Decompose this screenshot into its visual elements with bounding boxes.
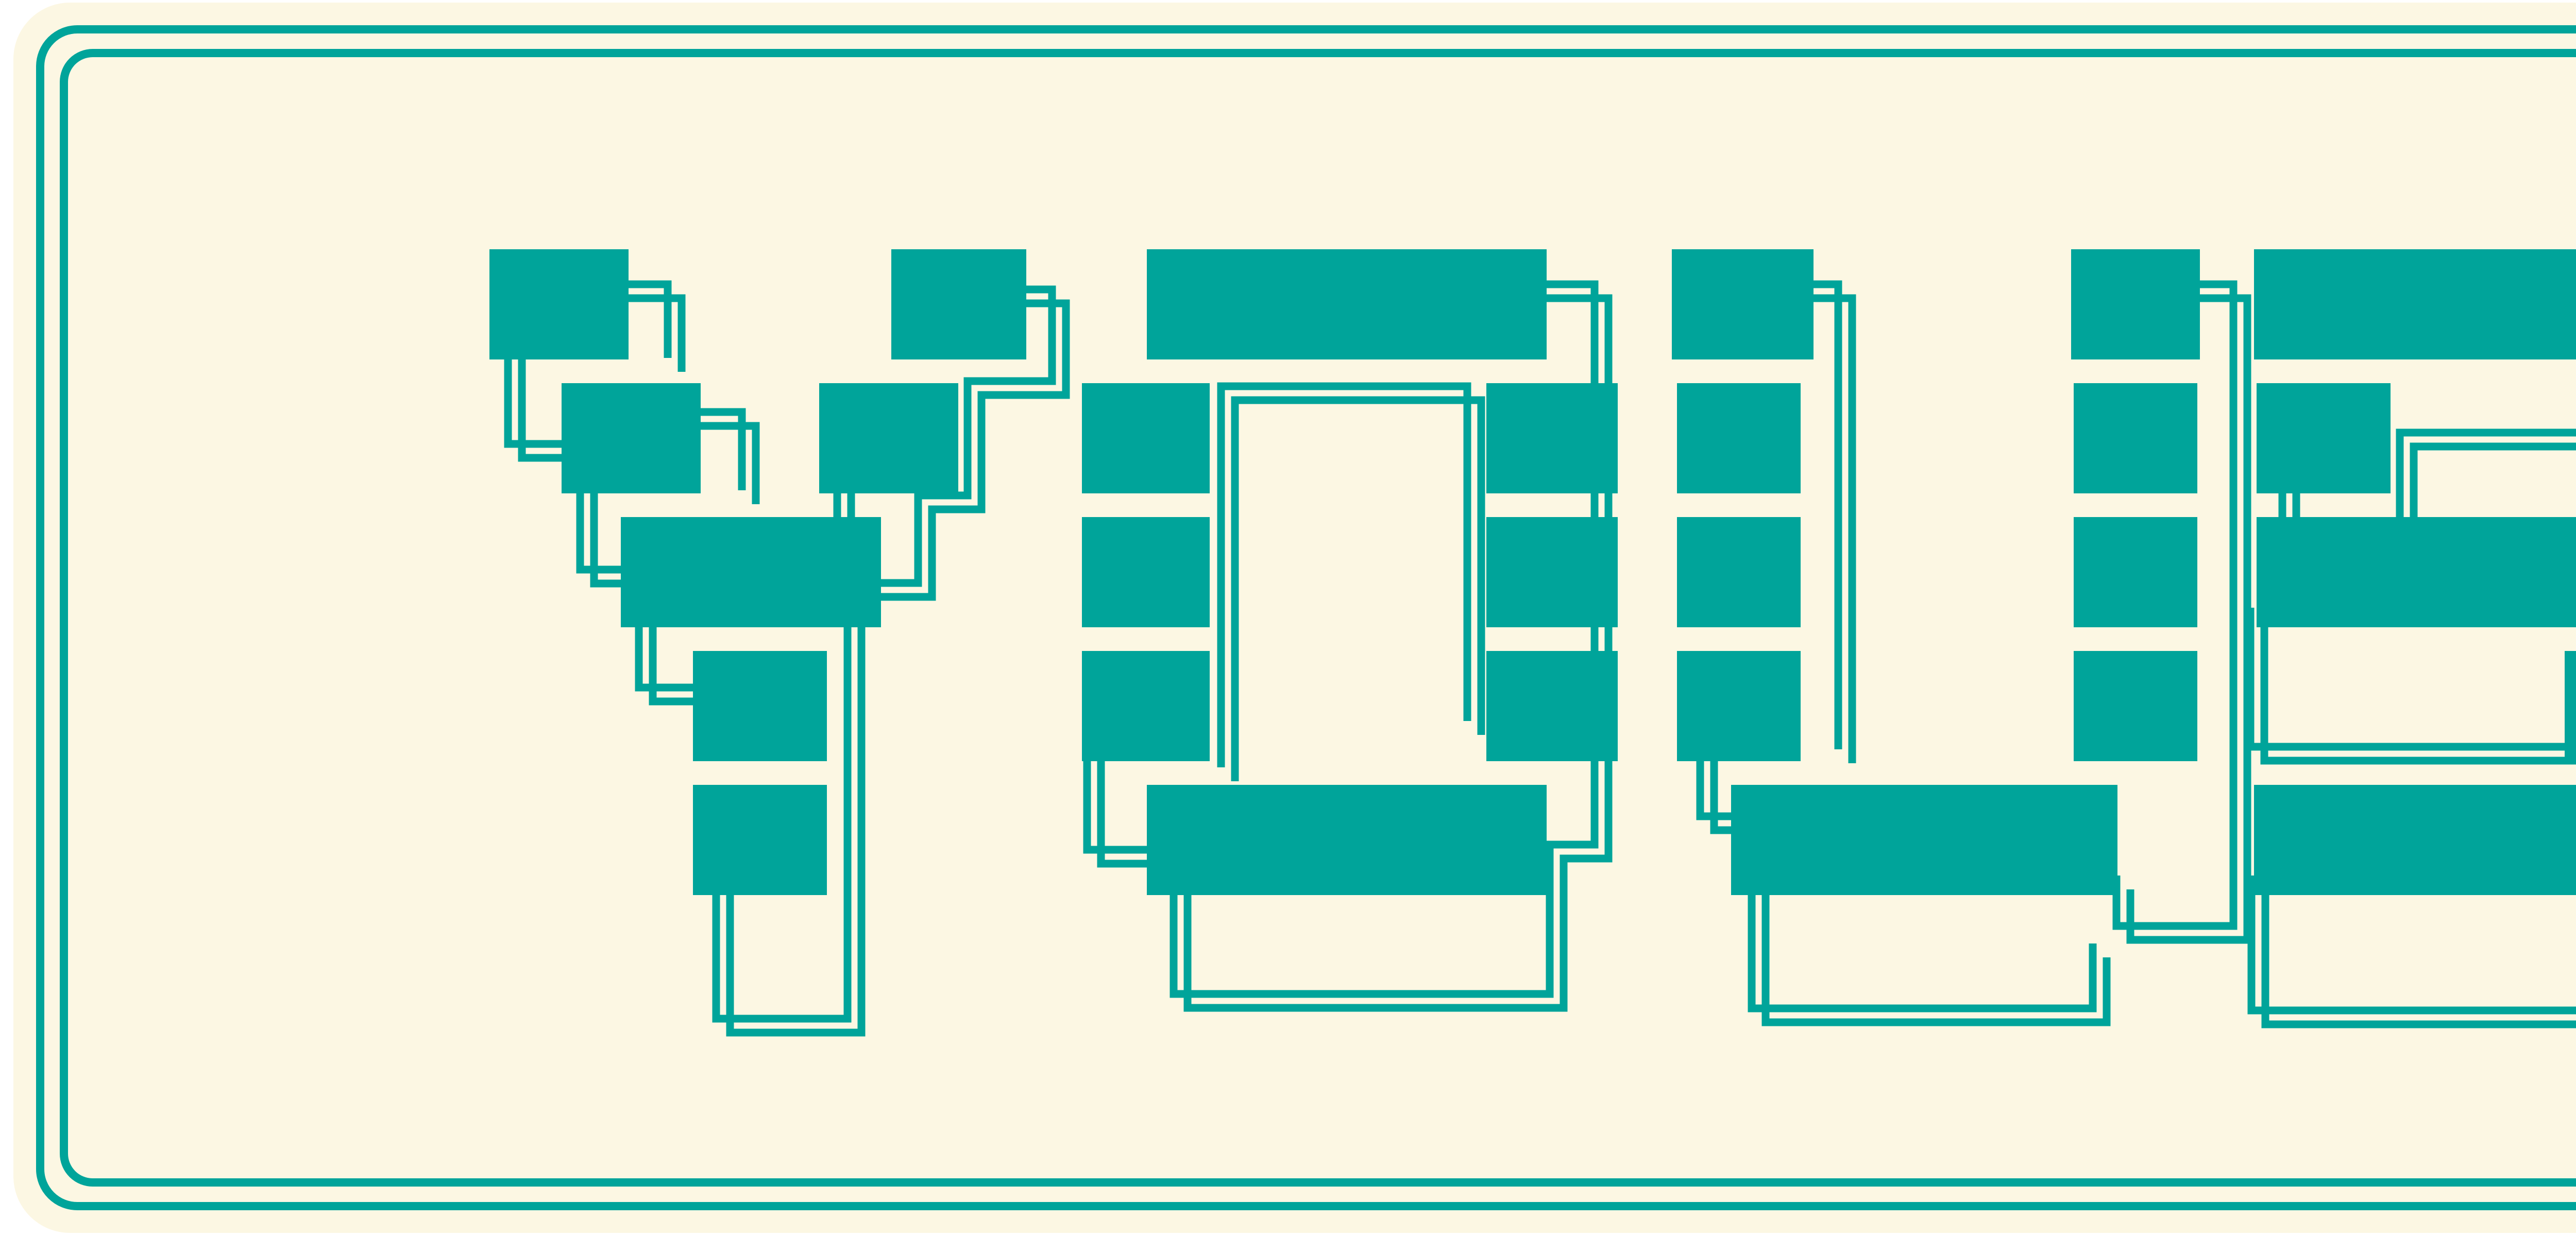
letter-block-o bbox=[1486, 651, 1618, 761]
letter-block-y bbox=[819, 383, 958, 493]
letter-block-y bbox=[621, 517, 881, 627]
letter-block-s bbox=[2257, 517, 2576, 627]
letter-block-y bbox=[693, 785, 827, 895]
letter-block-s bbox=[2565, 651, 2576, 761]
letter-block-u bbox=[1672, 249, 1814, 359]
logo-canvas: YOUSIM bbox=[0, 0, 2576, 1236]
letter-block-s bbox=[2257, 383, 2391, 493]
letter-block-o bbox=[1486, 383, 1618, 493]
letter-block-u bbox=[2074, 517, 2197, 627]
letter-block-u bbox=[2074, 651, 2197, 761]
letter-block-y bbox=[562, 383, 701, 493]
letter-block-y bbox=[891, 249, 1026, 359]
letter-block-u bbox=[2071, 249, 2200, 359]
letter-block-o bbox=[1147, 785, 1547, 895]
letter-block-s bbox=[2254, 249, 2576, 359]
letter-block-u bbox=[2074, 383, 2197, 493]
letter-block-y bbox=[693, 651, 827, 761]
letter-block-y bbox=[489, 249, 629, 359]
letter-block-s bbox=[2254, 785, 2576, 895]
letter-block-o bbox=[1147, 249, 1547, 359]
letter-block-o bbox=[1082, 383, 1210, 493]
letter-block-u bbox=[1677, 517, 1801, 627]
letter-block-o bbox=[1082, 517, 1210, 627]
letter-block-u bbox=[1677, 383, 1801, 493]
letter-block-u bbox=[1731, 785, 2117, 895]
letter-block-o bbox=[1486, 517, 1618, 627]
letter-block-u bbox=[1677, 651, 1801, 761]
letter-block-o bbox=[1082, 651, 1210, 761]
yousim-logo bbox=[0, 0, 2576, 1236]
